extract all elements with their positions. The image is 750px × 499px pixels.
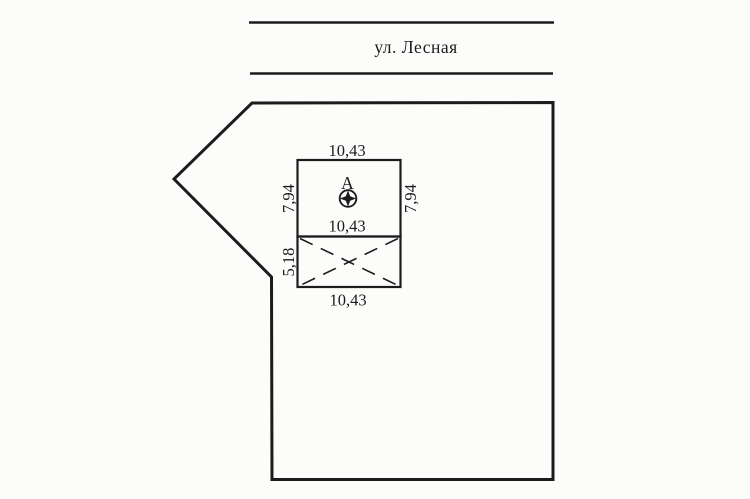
dim-bottom-width: 10,43 — [329, 291, 366, 310]
site-plan-drawing: ул. Лесная А 10,43 7,94 7,94 10,43 5,18 … — [0, 0, 750, 499]
building-extension — [298, 237, 401, 288]
dim-top-width: 10,43 — [328, 141, 365, 160]
street-name-label: ул. Лесная — [374, 37, 457, 57]
survey-point-icon — [340, 190, 357, 207]
dimension-labels: 10,43 7,94 7,94 10,43 5,18 10,43 — [279, 141, 420, 310]
dim-left-height: 7,94 — [279, 184, 298, 213]
dim-middle-width: 10,43 — [328, 217, 365, 236]
site-plan-page: ул. Лесная А 10,43 7,94 7,94 10,43 5,18 … — [0, 0, 750, 499]
dim-extension-height: 5,18 — [279, 248, 298, 277]
street: ул. Лесная — [249, 23, 554, 74]
dim-right-height: 7,94 — [401, 184, 420, 213]
